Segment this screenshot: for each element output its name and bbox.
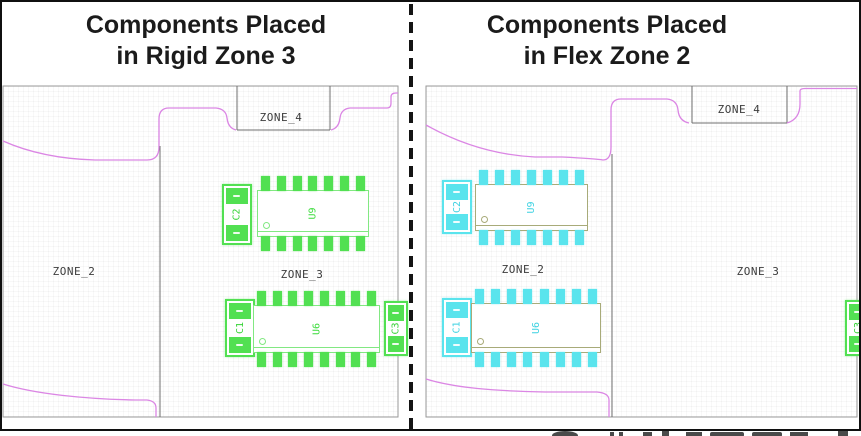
capacitor-c2-flex: C2	[442, 180, 472, 234]
ic-pin	[572, 352, 581, 367]
ic-pin	[277, 176, 286, 191]
right-zone3-label: ZONE_3	[737, 265, 780, 278]
ic-pin	[475, 289, 484, 304]
right-board-outline-top-right	[787, 89, 857, 124]
ic-pin	[351, 291, 360, 306]
ic-pin1-marker	[259, 338, 266, 345]
capacitor-c3-edge-right-panel: C3	[845, 300, 861, 356]
ic-pin1-marker	[263, 222, 270, 229]
ic-pin	[495, 170, 504, 185]
ic-pin	[367, 352, 376, 367]
ic-ref-label: U9	[291, 159, 336, 269]
ic-pin	[479, 230, 488, 245]
ic-u9-rigid: U9	[257, 190, 369, 237]
ic-pin	[261, 176, 270, 191]
left-zone4-label: ZONE_4	[260, 111, 303, 124]
ic-pin	[273, 291, 282, 306]
ic-pin	[277, 236, 286, 251]
right-title-line2: in Flex Zone 2	[420, 41, 794, 72]
ic-pin	[559, 230, 568, 245]
cropped-glyph-fragment	[552, 431, 578, 436]
cap-ref-label: C3	[371, 319, 422, 339]
ic-pin	[351, 352, 360, 367]
ic-pin	[495, 230, 504, 245]
cropped-glyph-fragment	[790, 432, 808, 436]
ic-pin	[261, 236, 270, 251]
cropped-glyph-fragment	[610, 432, 614, 436]
capacitor-c1-flex: C1	[442, 298, 472, 357]
ic-u9-flex: U9	[475, 184, 588, 231]
ic-pin	[356, 176, 365, 191]
ic-pin	[572, 289, 581, 304]
ic-pin	[575, 230, 584, 245]
ic-u6-rigid: U6	[253, 305, 380, 353]
ic-pin	[340, 236, 349, 251]
left-board-outline-top	[3, 108, 236, 160]
right-title-line1: Components Placed	[420, 10, 794, 41]
ic-pin	[559, 170, 568, 185]
capacitor-c2-rigid: C2	[222, 184, 252, 245]
right-panel-title: Components Placed in Flex Zone 2	[420, 10, 794, 72]
ic-pin	[575, 170, 584, 185]
ic-pin	[257, 291, 266, 306]
capacitor-c3-edge-left-panel: C3	[384, 301, 408, 356]
ic-pin	[257, 352, 266, 367]
ic-pin1-marker	[477, 338, 484, 345]
left-title-line1: Components Placed	[2, 10, 410, 41]
dashed-divider-line	[409, 4, 413, 430]
left-title-line2: in Rigid Zone 3	[2, 41, 410, 72]
left-board-outline-bottom	[3, 384, 156, 417]
left-zone2-label: ZONE_2	[53, 265, 96, 278]
ic-pin	[367, 291, 376, 306]
ic-pin	[491, 289, 500, 304]
ic-pin	[475, 352, 484, 367]
ic-pin	[479, 170, 488, 185]
ic-ref-label: U6	[294, 267, 340, 392]
right-panel-border	[426, 86, 857, 417]
capacitor-c1-rigid: C1	[225, 299, 255, 357]
ic-pin	[588, 352, 597, 367]
left-board-outline-top-right	[331, 93, 398, 130]
right-zone4-label: ZONE_4	[718, 103, 761, 116]
ic-ref-label: U9	[509, 152, 554, 263]
ic-pin1-marker	[481, 216, 488, 223]
cropped-glyph-fragment	[643, 432, 652, 436]
cap-ref-label: C3	[832, 317, 861, 339]
ic-ref-label: U6	[512, 264, 560, 392]
cropped-glyph-fragment	[619, 432, 623, 436]
ic-pin	[273, 352, 282, 367]
cropped-glyph-fragment	[686, 432, 702, 436]
ic-pin	[491, 352, 500, 367]
cropped-glyph-fragment	[838, 431, 848, 436]
cropped-glyph-fragment	[752, 432, 782, 436]
right-board-outline-top	[426, 99, 689, 160]
left-panel-title: Components Placed in Rigid Zone 3	[2, 10, 410, 72]
ic-u6-flex: U6	[471, 303, 601, 353]
cropped-glyph-fragment	[710, 432, 744, 436]
ic-pin	[588, 289, 597, 304]
ic-pin	[356, 236, 365, 251]
ic-pin	[340, 176, 349, 191]
pcb-placement-figure: Components Placed in Rigid Zone 3 Compon…	[0, 0, 861, 436]
cropped-glyph-fragment	[662, 431, 669, 436]
